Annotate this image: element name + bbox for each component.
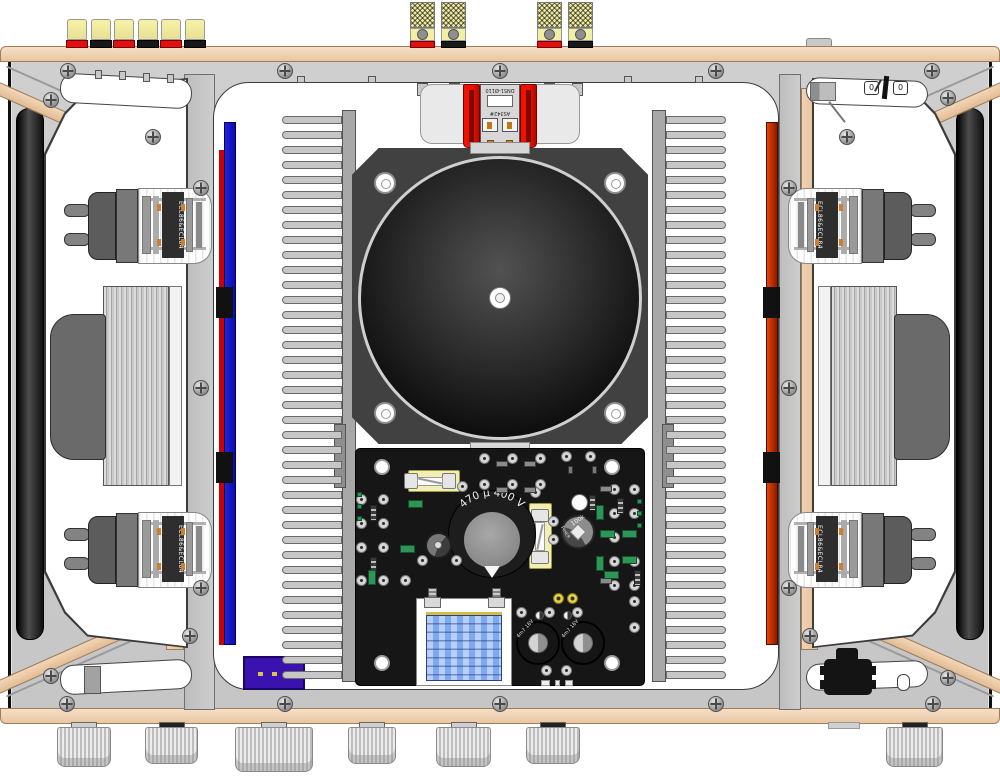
bracket-red-stripe [526, 90, 531, 142]
tube-electrode [186, 198, 193, 252]
solder-pad [457, 481, 468, 492]
heatsink-fin [666, 311, 726, 319]
diode-green [622, 556, 637, 564]
tube-electrode [196, 202, 202, 248]
heatsink-fin [282, 416, 342, 424]
tube-heater-dot [839, 239, 843, 246]
heatsink-fin [666, 416, 726, 424]
heatsink-fin [666, 131, 726, 139]
pad-stem [568, 466, 573, 474]
amplifier-top-view-illustration: 0 0 DN51-Ø110 AS342# [0, 0, 1000, 776]
knurled-knob [436, 727, 491, 767]
solder-pad [609, 556, 620, 567]
tube-electrode [196, 526, 202, 572]
edge-pin [368, 76, 376, 83]
diode-green [596, 505, 604, 520]
strip-clamp [763, 287, 780, 318]
tube-heater-dot [181, 563, 185, 570]
jack-band [160, 40, 182, 48]
mount-tab [470, 142, 530, 154]
tube-base [88, 516, 116, 584]
jack-band [113, 40, 135, 48]
strip-clamp [763, 452, 780, 483]
speaker-jack [138, 19, 158, 40]
transformer-spacer [818, 286, 831, 486]
heatsink-fin [282, 356, 342, 364]
tube-electrode [807, 522, 814, 576]
heatsink-fin [666, 116, 726, 124]
heatsink-fin [666, 281, 726, 289]
heatsink-fin [666, 326, 726, 334]
phillips-screw-icon [492, 696, 508, 712]
heatsink-fin [282, 341, 342, 349]
jack-band [184, 40, 206, 48]
rear-connector-body [824, 659, 872, 695]
heatsink-fin [282, 131, 342, 139]
solder-pad [572, 607, 583, 618]
heatsink-fin [666, 626, 726, 634]
binding-post-hole [448, 29, 459, 40]
heatsink-fin [666, 491, 726, 499]
clip-block [84, 666, 101, 694]
resistor [524, 487, 536, 493]
heatsink-fin [282, 446, 342, 454]
binding-post-knurl [410, 2, 435, 28]
heatsink-fin [282, 536, 342, 544]
diode-dot [637, 523, 642, 528]
diode-green [408, 500, 423, 508]
silkscreen-mark [555, 680, 560, 686]
solder-pad [548, 534, 559, 545]
binding-post-hole [575, 29, 586, 40]
heatsink-fin [666, 566, 726, 574]
resistor-striped [370, 505, 377, 521]
diode-dot [637, 499, 642, 504]
solder-pad [378, 575, 389, 586]
tube-heater-dot [181, 239, 185, 246]
binding-post-band [410, 41, 435, 48]
right-strip-orange [766, 122, 778, 645]
speaker-jack [67, 19, 87, 40]
binding-post-knurl [441, 2, 466, 28]
heatsink-fin [282, 671, 342, 679]
speaker-jack [114, 19, 134, 40]
solder-pad [378, 518, 389, 529]
svg-text:470 µ 400 V: 470 µ 400 V [457, 487, 527, 511]
tube-electrode [142, 520, 151, 578]
phillips-screw-icon [940, 90, 956, 106]
phillips-screw-icon [924, 63, 940, 79]
heatsink-fin [282, 161, 342, 169]
phillips-screw-icon [43, 92, 59, 108]
left-corner-pillar [16, 108, 44, 640]
reservoir-capacitor-label: 470 µ 400 V [444, 486, 540, 542]
heatsink-fin [666, 296, 726, 304]
binding-post-hole [544, 29, 555, 40]
heatsink-fin [666, 386, 726, 394]
phillips-screw-icon [940, 670, 956, 686]
diode-green [400, 545, 415, 553]
heatsink-fin [282, 551, 342, 559]
mains-connector-label1: DN51-Ø110 [481, 86, 519, 93]
connector-pin-dot [272, 672, 277, 676]
heatsink-fin [282, 266, 342, 274]
resistor [496, 487, 508, 493]
electrolytic-vent [573, 633, 593, 653]
edge-pin [695, 76, 703, 83]
tube-heater-dot [815, 563, 819, 570]
heatsink-fin [282, 401, 342, 409]
tube-base [884, 516, 912, 584]
heatsink-fin [666, 536, 726, 544]
tube-pin [64, 204, 90, 217]
heatsink-fin [282, 116, 342, 124]
phillips-screw-icon [925, 696, 941, 712]
vacuum-tube-right-2: ECL86&ECL84 [788, 510, 936, 590]
terminal-pin [95, 70, 102, 79]
phillips-screw-icon [492, 63, 508, 79]
tube-base-plate [862, 189, 884, 263]
solder-pad [507, 479, 518, 490]
heatsink-fin [282, 191, 342, 199]
heatsink-fin [666, 581, 726, 589]
heatsink-fin [282, 581, 342, 589]
tube-type-label: ECL86&ECL84 [816, 516, 838, 582]
resistor-striped [589, 495, 596, 511]
heatsink-fin [666, 506, 726, 514]
heatsink-fin [282, 146, 342, 154]
heatsink-fin [666, 401, 726, 409]
heatsink-fin [666, 356, 726, 364]
terminal-pin-orange [507, 122, 512, 129]
heatsink-fin [666, 266, 726, 274]
heatsink-fin [666, 371, 726, 379]
heatsink-fin [282, 176, 342, 184]
diode-green [622, 530, 637, 538]
heatsink-fin [666, 671, 726, 679]
tube-base-plate [862, 513, 884, 587]
rear-connector-bump [871, 680, 876, 689]
binding-post-band [537, 41, 562, 48]
solder-pad [629, 622, 640, 633]
diode-green [368, 570, 376, 585]
tube-base [884, 192, 912, 260]
heatsink-fin [666, 146, 726, 154]
solder-pad [561, 451, 572, 462]
tube-electrode [142, 196, 151, 254]
spacer-piece [828, 722, 860, 729]
solder-pad [451, 555, 462, 566]
tube-electrode [849, 520, 858, 578]
pcb-hole [374, 655, 390, 671]
phillips-screw-icon [708, 696, 724, 712]
toroid-center-screw-inner [495, 293, 505, 303]
tube-pin [64, 233, 90, 246]
phillips-screw-icon [193, 180, 209, 196]
heatsink-fin [282, 611, 342, 619]
heatsink-fin [282, 521, 342, 529]
knurled-knob [348, 727, 396, 764]
tube-type-label: ECL86&ECL84 [162, 516, 184, 582]
knurled-knob [57, 727, 111, 767]
heatsink-fin [282, 566, 342, 574]
heatsink-fin [282, 386, 342, 394]
power-switch-position-right: 0 [893, 81, 908, 95]
phillips-screw-icon [145, 129, 161, 145]
jack-band [137, 40, 159, 48]
mount-hole [374, 402, 396, 424]
solder-pad [417, 555, 428, 566]
solder-pad [535, 453, 546, 464]
phillips-screw-icon [277, 696, 293, 712]
wood-frame-top [0, 46, 1000, 62]
solder-pad [356, 575, 367, 586]
tube-heater-dot [815, 528, 819, 535]
pcb-hole [604, 655, 620, 671]
heatsink-fin [282, 236, 342, 244]
phillips-screw-icon [781, 180, 797, 196]
tube-heater-dot [157, 563, 161, 570]
heatsink-fin [282, 626, 342, 634]
electrolytic-vent [528, 633, 548, 653]
phillips-screw-icon [59, 696, 75, 712]
edge-pin [624, 76, 632, 83]
left-strip-blue [224, 122, 236, 645]
tube-electrode [186, 522, 193, 576]
phillips-screw-icon [193, 380, 209, 396]
solder-pad [561, 665, 572, 676]
solder-pad [541, 665, 552, 676]
heatsink-fin [282, 221, 342, 229]
heatsink-fin [666, 221, 726, 229]
terminal-pin [167, 74, 174, 83]
right-heatsink-spine [652, 110, 666, 682]
tube-heater-dot [157, 204, 161, 211]
vacuum-tube-right-1: ECL86&ECL84 [788, 186, 936, 266]
heatsink-fin [282, 371, 342, 379]
heatsink-fin [282, 281, 342, 289]
solder-pad [378, 494, 389, 505]
right-output-transformer-core [831, 286, 897, 486]
heatsink-fin [666, 431, 726, 439]
strip-clamp [216, 452, 233, 483]
silkscreen-mark [565, 680, 573, 686]
tube-base-plate [116, 189, 138, 263]
heatsink-fin [666, 656, 726, 664]
pad-yellow [567, 593, 578, 604]
heatsink-fin [666, 176, 726, 184]
heatsink-fin [282, 311, 342, 319]
edge-pin [297, 76, 305, 83]
heatsink-fin [282, 476, 342, 484]
film-cap-white [571, 494, 588, 511]
binding-post-hole [417, 29, 428, 40]
heatsink-fin [666, 476, 726, 484]
heatsink-fin [666, 461, 726, 469]
tube-heater-dot [815, 239, 819, 246]
tube-heater-dot [181, 204, 185, 211]
tube-heater-dot [839, 563, 843, 570]
knurled-knob [526, 727, 580, 764]
resistor-striped [634, 570, 641, 586]
mount-hole [604, 402, 626, 424]
terminal-pin [119, 71, 126, 80]
resistor [600, 486, 612, 492]
heatsink-fin [282, 656, 342, 664]
latch-block [810, 82, 836, 101]
vacuum-tube-left-2: ECL86&ECL84 [64, 510, 212, 590]
tube-base-plate [116, 513, 138, 587]
solder-pad [479, 453, 490, 464]
phillips-screw-icon [802, 628, 818, 644]
phillips-screw-icon [277, 63, 293, 79]
tube-heater-dot [839, 528, 843, 535]
phillips-screw-icon [781, 580, 797, 596]
mains-connector-window [487, 95, 513, 107]
mount-hole [604, 172, 626, 194]
diode-two-tone [563, 611, 572, 620]
phillips-screw-icon [839, 129, 855, 145]
heatsink-fin [666, 191, 726, 199]
solder-pad [479, 479, 490, 490]
knurled-knob [235, 727, 313, 772]
tube-base [88, 192, 116, 260]
solder-pad [356, 542, 367, 553]
heatsink-fin [282, 206, 342, 214]
rear-connector-bump [820, 680, 825, 689]
heatsink-fin [666, 161, 726, 169]
mount-hole [374, 172, 396, 194]
tube-type-label: ECL86&ECL84 [816, 192, 838, 258]
heatsink-fin [282, 296, 342, 304]
fuse-cap [404, 473, 418, 489]
phillips-screw-icon [781, 380, 797, 396]
diode-green [600, 530, 615, 538]
pcb-hole [604, 459, 620, 475]
connector-pin-dot [258, 672, 263, 676]
heatsink-fin [666, 251, 726, 259]
transformer-spacer [169, 286, 182, 486]
tube-pin [910, 204, 936, 217]
heatsink-fin [666, 341, 726, 349]
right-corner-pillar [956, 108, 984, 640]
speaker-jack [185, 19, 205, 40]
solder-pad [378, 542, 389, 553]
heatsink-fin [282, 461, 342, 469]
tube-type-label: ECL86&ECL84 [162, 192, 184, 258]
tube-electrode [798, 526, 804, 572]
heatsink-fin [666, 521, 726, 529]
hex-nut [488, 597, 505, 608]
resistor [496, 461, 508, 467]
phillips-screw-icon [43, 668, 59, 684]
tube-electrode [798, 202, 804, 248]
heatsink-fin [666, 596, 726, 604]
phillips-screw-icon [60, 63, 76, 79]
heatsink-fin [282, 326, 342, 334]
resistor-striped [617, 498, 624, 514]
trimmer-slot [434, 541, 442, 549]
right-output-transformer-bell [894, 314, 950, 460]
diode-dot [357, 492, 362, 497]
knurled-knob [886, 727, 943, 767]
solder-pad [544, 607, 555, 618]
heatsink-fin [282, 491, 342, 499]
phillips-screw-icon [708, 63, 724, 79]
solder-pad [400, 575, 411, 586]
heatsink-fin [666, 446, 726, 454]
fuse-cap [531, 551, 549, 564]
heatsink-fin [282, 251, 342, 259]
heatsink-fin [666, 236, 726, 244]
jack-band [90, 40, 112, 48]
tube-electrode [807, 198, 814, 252]
blue-film-capacitor [426, 615, 502, 681]
diode-dot [357, 504, 362, 509]
mains-connector-label2: AS342# [481, 109, 519, 116]
diode-green [604, 571, 619, 579]
tube-pin [910, 528, 936, 541]
tube-pin [910, 233, 936, 246]
pad-yellow [553, 593, 564, 604]
tube-pin [64, 528, 90, 541]
tube-electrode [849, 196, 858, 254]
tube-heater-dot [157, 239, 161, 246]
jack-band [66, 40, 88, 48]
resistor [524, 461, 536, 467]
diode-dot [637, 511, 642, 516]
heatsink-fin [666, 206, 726, 214]
diode-green [596, 556, 604, 571]
diode-dot [357, 516, 362, 521]
heatsink-fin [282, 506, 342, 514]
terminal-pin [143, 73, 150, 82]
binding-post-knurl [537, 2, 562, 28]
strip-clamp [216, 287, 233, 318]
heatsink-fin [282, 431, 342, 439]
binding-post-band [568, 41, 593, 48]
binding-post-knurl [568, 2, 593, 28]
solder-pad [629, 484, 640, 495]
bracket-red-stripe [469, 90, 474, 142]
terminal-pin-orange [487, 122, 492, 129]
phillips-screw-icon [193, 580, 209, 596]
knurled-knob [145, 727, 198, 764]
heatsink-fin [282, 641, 342, 649]
heatsink-fin [666, 551, 726, 559]
speaker-jack [91, 19, 111, 40]
tube-heater-dot [815, 204, 819, 211]
heatsink-fin [666, 611, 726, 619]
solder-pad [629, 596, 640, 607]
left-output-transformer-core [103, 286, 169, 486]
vacuum-tube-left-1: ECL86&ECL84 [64, 186, 212, 266]
tube-heater-dot [181, 528, 185, 535]
speaker-jack [161, 19, 181, 40]
hex-nut [424, 597, 441, 608]
tube-heater-dot [839, 204, 843, 211]
heatsink-fin [666, 641, 726, 649]
rear-slot [897, 674, 910, 691]
mains-connector-housing [480, 84, 520, 148]
left-output-transformer-bell [50, 314, 106, 460]
solder-pad [585, 451, 596, 462]
pcb-hole [374, 459, 390, 475]
binding-post-band [441, 41, 466, 48]
tube-pin [910, 557, 936, 570]
tube-heater-dot [157, 528, 161, 535]
rear-connector-bump [871, 666, 876, 675]
